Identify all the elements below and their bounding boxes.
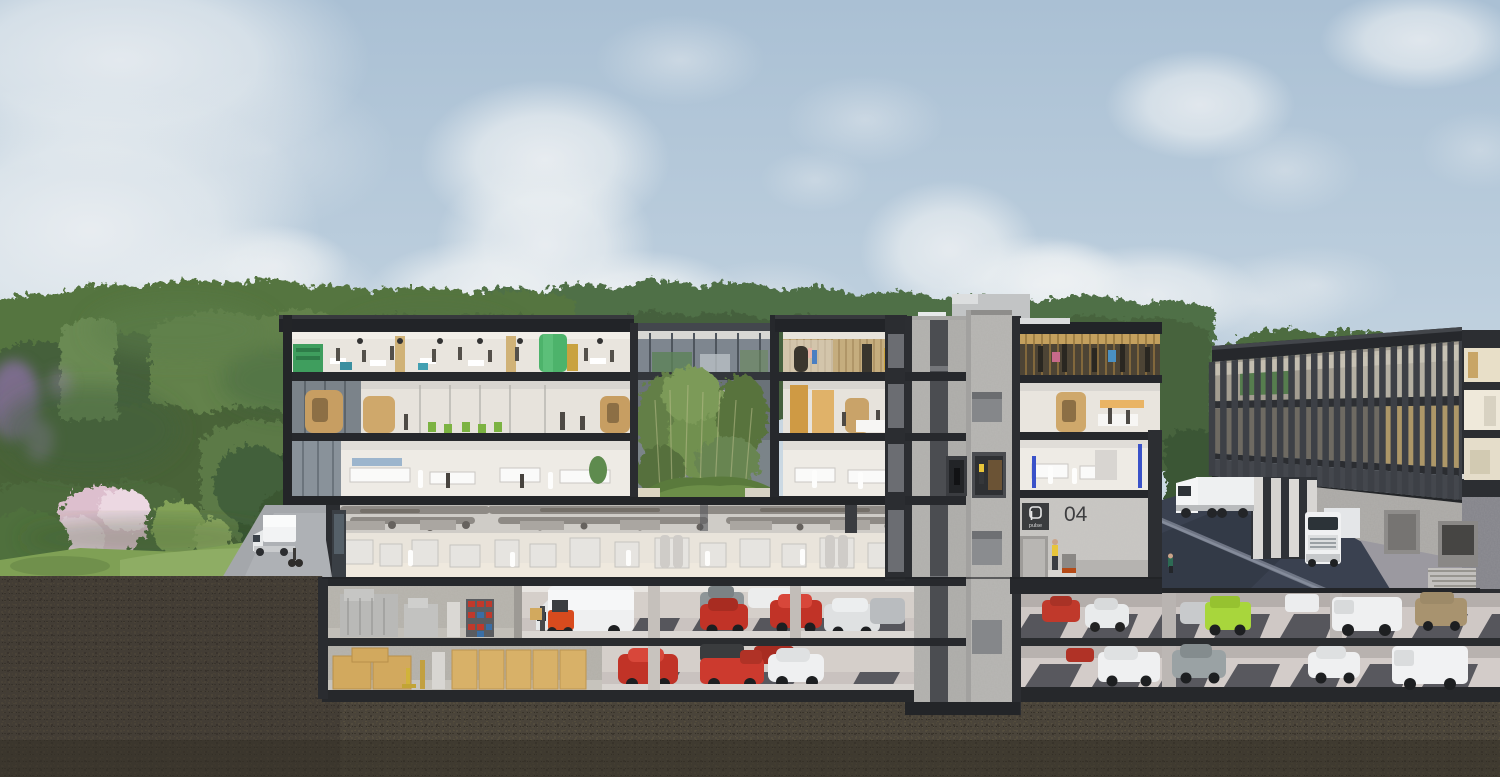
- svg-text:04: 04: [1064, 503, 1088, 526]
- svg-text:pulse: pulse: [1029, 523, 1042, 529]
